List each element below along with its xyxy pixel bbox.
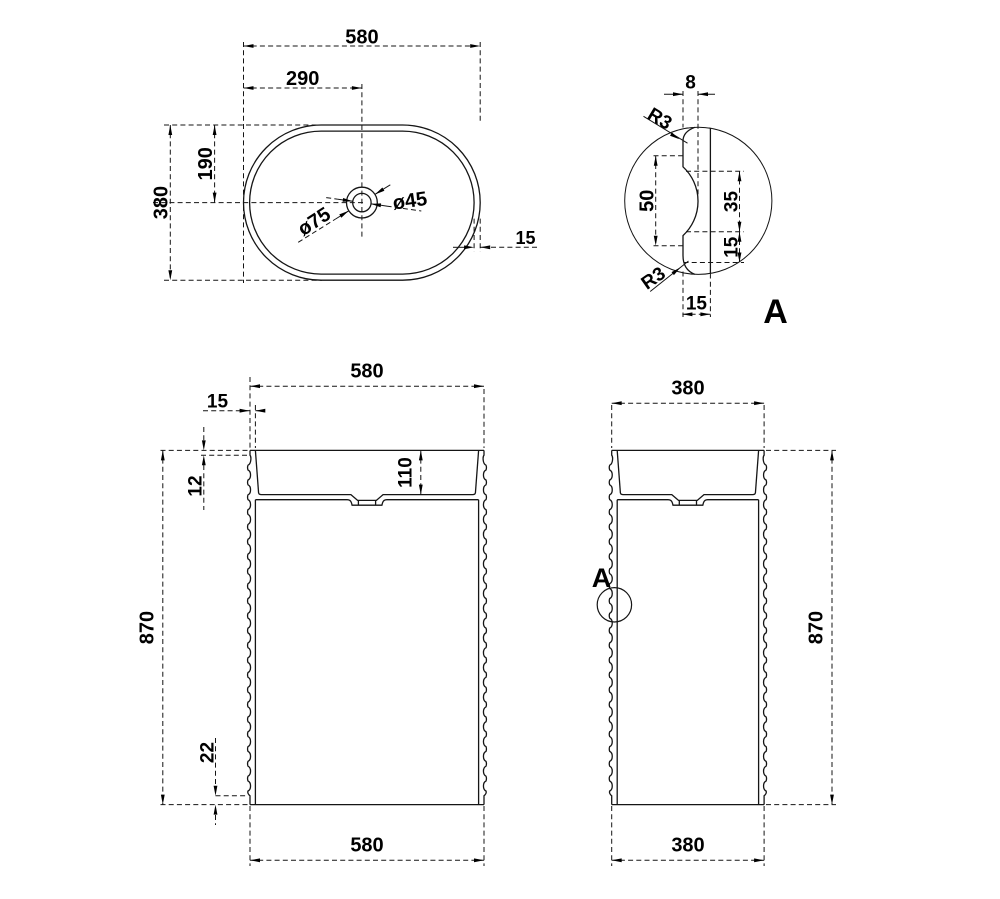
svg-text:22: 22 (197, 742, 218, 763)
svg-text:12: 12 (186, 475, 207, 496)
svg-text:380: 380 (671, 378, 704, 400)
svg-text:50: 50 (637, 190, 659, 212)
svg-text:15: 15 (207, 391, 229, 412)
svg-text:380: 380 (151, 186, 173, 219)
svg-text:15: 15 (721, 236, 742, 258)
svg-text:A: A (592, 563, 612, 593)
svg-text:870: 870 (806, 611, 828, 644)
svg-text:35: 35 (721, 191, 742, 213)
svg-text:110: 110 (395, 457, 416, 488)
svg-text:15: 15 (686, 294, 708, 315)
svg-text:290: 290 (286, 68, 319, 90)
svg-text:870: 870 (136, 611, 158, 644)
svg-text:580: 580 (345, 27, 378, 49)
svg-text:A: A (763, 293, 788, 331)
svg-text:380: 380 (671, 835, 704, 857)
svg-text:15: 15 (515, 228, 535, 248)
svg-text:580: 580 (350, 361, 383, 383)
svg-text:580: 580 (350, 835, 383, 857)
svg-text:8: 8 (685, 73, 696, 94)
svg-text:190: 190 (195, 147, 217, 180)
